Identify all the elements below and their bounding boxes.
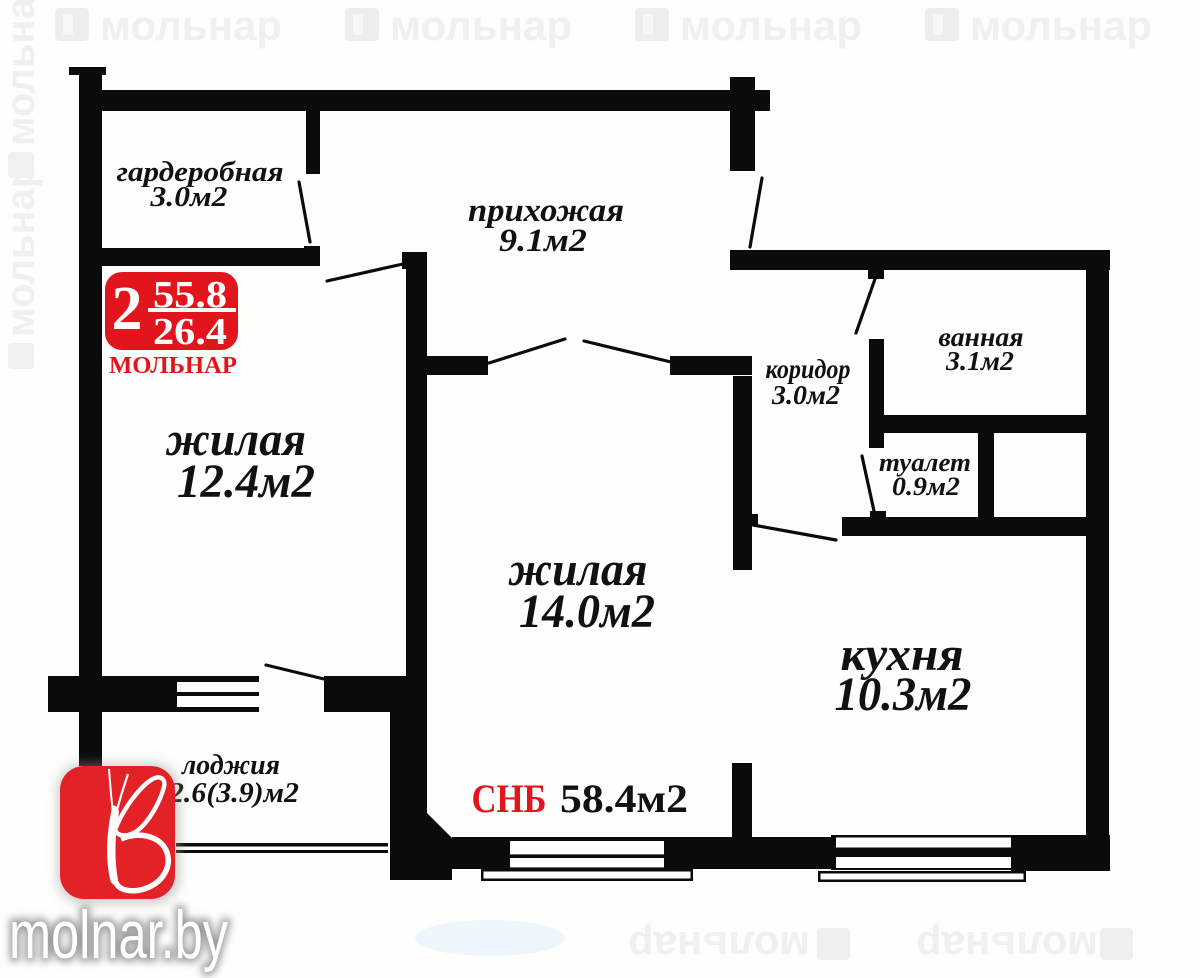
svg-text:9.1м2: 9.1м2 [499,223,587,259]
svg-text:мольнар: мольнар [628,923,810,970]
svg-text:МОЛЬНАР: МОЛЬНАР [109,353,237,379]
svg-text:3.0м2: 3.0м2 [149,182,227,213]
svg-text:мольнар: мольнар [0,164,43,337]
svg-text:лоджия: лоджия [181,750,280,781]
svg-text:2.6(3.9)м2: 2.6(3.9)м2 [168,778,299,809]
svg-text:3.1м2: 3.1м2 [945,346,1014,376]
svg-text:СНБ: СНБ [472,776,547,821]
svg-text:3.0м2: 3.0м2 [771,380,840,410]
svg-text:58.4м2: 58.4м2 [560,776,688,821]
svg-text:12.4м2: 12.4м2 [177,455,315,508]
svg-text:10.3м2: 10.3м2 [835,668,972,721]
svg-text:мольнар: мольнар [100,2,282,49]
svg-text:26.4: 26.4 [153,311,227,353]
svg-text:0.9м2: 0.9м2 [892,472,960,501]
svg-text:molnar.by: molnar.by [9,897,228,973]
svg-text:мольнар: мольнар [916,923,1098,970]
svg-text:55.8: 55.8 [153,274,227,316]
svg-text:14.0м2: 14.0м2 [519,585,655,638]
svg-text:2: 2 [112,275,143,343]
svg-text:мольнар: мольнар [0,0,43,146]
